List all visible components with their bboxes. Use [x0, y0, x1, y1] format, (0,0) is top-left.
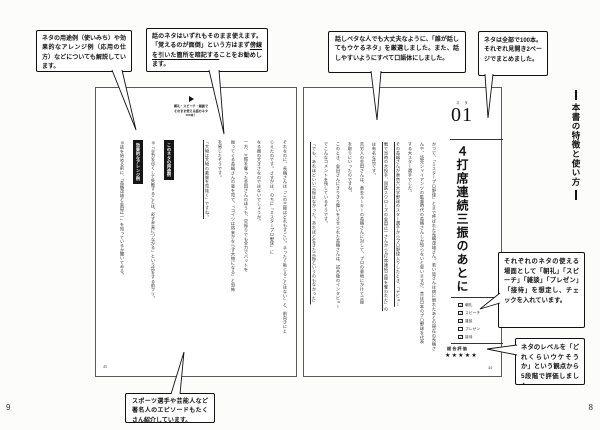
callout-rating-scale: ネタのレベルを「どれくらいウケそうか」という観点から5段階で評価しました。: [515, 338, 585, 385]
logo-line-1: 朝礼・スピーチ・雑談で: [168, 104, 214, 109]
callout-scene-checks: それぞれのネタの使える場面として「朝礼」「スピーチ」「雑談」「プレゼン」「接待」…: [498, 252, 585, 328]
header-rule-top: [575, 90, 577, 100]
callout-colloquial-style: 話しベタな人でも大丈夫なように、「誰が話してもウケるネタ」を厳選しました。また、…: [328, 31, 466, 73]
text-column: それなのに、長嶋さんは「この三振はどれもすごい。まったく恥じることはない」と、前…: [279, 140, 292, 364]
text-column: なる器の大きさなのではないでしょうか。: [253, 140, 266, 364]
arrange-example-body: ◎話を始める前に、「長嶋茂雄と金田正一」を知っているか聞いてみる。: [117, 140, 128, 364]
scene-label: スピーチ: [465, 311, 480, 316]
text-column: 苦労人の金田さんは、黄金ルーキーの長嶋さんに対して、プロの意地にかけて三振: [356, 142, 368, 366]
checkbox-icon: ✓: [458, 311, 463, 316]
text-column: 振ってくる長嶋さんの姿を見て、「コイツは将来かならず大物になる」と恐怖: [227, 140, 240, 364]
rating-top-rule: [451, 343, 503, 344]
checkbox-icon: [458, 327, 463, 332]
neta-title: ４打席連続三振のあとに: [454, 145, 471, 305]
callout-memorize-underlines: 話のネタはいずれもそのまま使えます。「覚えるのが面倒」という方はまず傍線を引いた…: [146, 28, 268, 72]
callout-celebrity-episodes: スポーツ選手や芸能人など著名人のエピソードもたくさん紹介しています。: [125, 393, 215, 423]
text-column: を感じたそうです。: [214, 140, 227, 364]
text-column: このとき、金田さんにきりきり舞いをさせられた長嶋さんは、試合後のインタビュー: [332, 142, 344, 366]
checkbox-icon: ✓: [458, 303, 463, 308]
folio-left: 9: [6, 403, 10, 412]
arrange-example-heading: 効果的なアレンジ例: [133, 140, 143, 184]
text-column: 「でも、あれほどいい三振はなかった。あれほど生きた三振というのもなかった」: [308, 142, 320, 366]
checklist-top-rule: [451, 297, 503, 298]
text-column: でこんなコメントを残しているそうです。: [320, 142, 332, 366]
text-column: 「大物は大物の素質を見抜く」ですね。: [201, 140, 214, 364]
book-intro-spread: 朝礼・スピーチ・雑談で そのまま使える話のネタ 100本！ それなのに、長嶋さん…: [0, 0, 600, 430]
callout-usage-examples: ネタの用途例（使いみち）や効果的なアレンジ例（応用の仕方）などについても解説して…: [36, 30, 132, 72]
checkbox-icon: ✓: [458, 335, 463, 340]
scene-checklist: ✓ 朝礼 ✓ スピーチ ✓ 雑談 プレゼン ✓ 接待: [458, 301, 500, 341]
scene-label: 朝礼: [465, 303, 473, 308]
left-page-body-text: それなのに、長嶋さんは「この三振はどれもすごい。まったく恥じることはない」と、前…: [174, 140, 292, 364]
checkbox-icon: ✓: [458, 319, 463, 324]
scene-label: プレゼン: [465, 327, 480, 332]
folio-right: 8: [589, 403, 593, 412]
text-column: その長嶋さんが東京六大学野球のスター選手からプロ野球入りしたとき、「デビュー: [392, 142, 404, 366]
callout-100-topics: ネタは全部で100本。それぞれ見開き2ページでまとめました。: [478, 31, 548, 76]
text-column: する大スター選手でした。: [404, 142, 416, 366]
text-column: かつて、「ミスタープロ野球」とまで呼ばれた長嶋茂雄さん。若い皆さんは病に倒れたあ…: [428, 142, 440, 366]
logo-bird-icon: [189, 96, 194, 102]
sample-left-page: 朝礼・スピーチ・雑談で そのまま使える話のネタ 100本！ それなのに、長嶋さん…: [95, 87, 297, 377]
neta-number: 01: [442, 105, 482, 125]
text-column: らえたのです。さすがは、のちに「ミスタープロ野球」に: [266, 140, 279, 364]
usage-example-body: ◎「全力を尽くして失敗することは、必ず未来につながる」という話をする前フリ。: [148, 140, 159, 364]
logo-line-3: 100本！: [168, 113, 214, 118]
header-rule-bottom: [575, 190, 577, 200]
right-page-body-text: かつて、「ミスタープロ野球」とまで呼ばれた長嶋茂雄さん。若い皆さんは病に倒れたあ…: [308, 142, 440, 366]
usage-and-arrange-section: このネタの用途例 ◎「全力を尽くして失敗することは、必ず未来につながる」という話…: [110, 140, 174, 364]
text-column: 一方、三振を奪った金田さんのほうも、空振りでも全力でバットを: [240, 140, 253, 364]
section-header-title: 本書の特徴と使い方: [570, 103, 582, 187]
section-header: 本書の特徴と使い方: [563, 90, 589, 200]
scene-check-row: ✓ 朝礼: [458, 301, 500, 309]
text-column: んや、読売ジャイアンツの監督時代の長嶋さんしか知らないと思いますが、昔は日本のプ…: [416, 142, 428, 366]
book-logo: 朝礼・スピーチ・雑談で そのまま使える話のネタ 100本！: [168, 96, 214, 118]
usage-example-heading: このネタの用途例: [164, 140, 174, 180]
scene-label: 雑談: [465, 319, 473, 324]
sample-right-page: ネタ 01 ４打席連続三振のあとに かつて、「ミスタープロ野球」とまで呼ばれた長…: [303, 87, 502, 377]
left-page-number: 45: [103, 364, 107, 369]
text-column: 戦で当時の大投手、国鉄スワローズの金田正一さんから4打席連続三振を奪われた」の: [380, 142, 392, 366]
scene-check-row: プレゼン: [458, 325, 500, 333]
text-column: は有名な話です。: [368, 142, 380, 366]
callout-memorize-pre: 話のネタはいずれもそのまま使えます。「覚えるのが面倒」という方はまず: [152, 34, 262, 49]
rating-stars: ★★★★★: [445, 352, 478, 359]
scene-check-row: ✓ スピーチ: [458, 309, 500, 317]
scene-check-row: ✓ 雑談: [458, 317, 500, 325]
right-page-number: 44: [488, 365, 492, 370]
text-column: を取りにいったのですね。: [344, 142, 356, 366]
scene-check-row: ✓ 接待: [458, 333, 500, 341]
number-divider-rule: [450, 139, 503, 140]
scene-label: 接待: [465, 335, 473, 340]
